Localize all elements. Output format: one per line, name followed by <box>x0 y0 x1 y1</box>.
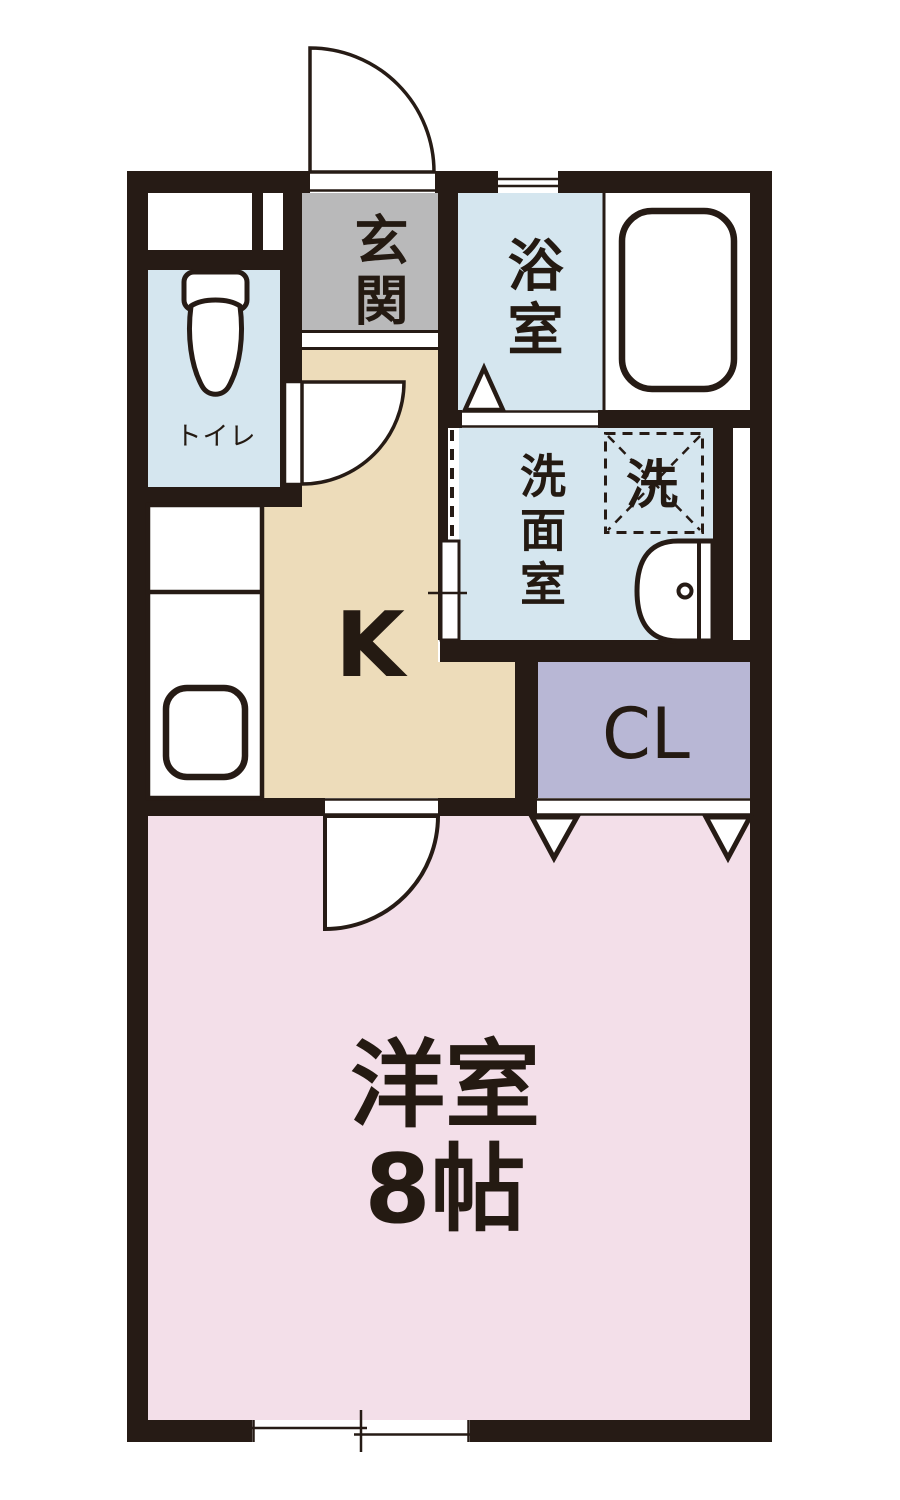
western-room-size: 8帖 <box>295 1138 595 1242</box>
bathroom-label: 浴室 <box>502 236 558 364</box>
bottom-sliding-window <box>252 1410 470 1452</box>
fixtures-layer <box>0 0 900 1500</box>
top-window <box>498 171 558 193</box>
kitchen-counter <box>148 505 262 798</box>
floor-plan: 玄関 浴室 洗面室 洗 トイレ K CL 洋室 8帖 <box>0 0 900 1500</box>
genkan-label: 玄関 <box>349 212 403 332</box>
kitchen-sink <box>166 688 245 777</box>
room-door-swing <box>325 798 438 929</box>
western-room-name: 洋室 <box>295 1034 595 1138</box>
toilet-label: トイレ <box>166 424 266 450</box>
toilet-icon <box>184 272 247 394</box>
entrance-door-swing <box>310 48 435 193</box>
washroom-label: 洗面室 <box>517 452 563 614</box>
kitchen-label: K <box>320 601 420 691</box>
western-room-label: 洋室 8帖 <box>295 1034 595 1242</box>
washroom-sliding-door <box>428 430 467 640</box>
bathroom-folding-door <box>462 368 598 428</box>
washer-space-label: 洗 <box>626 460 678 512</box>
closet-label: CL <box>596 699 696 769</box>
toilet-door-swing <box>285 382 404 484</box>
washbasin-icon <box>637 541 713 641</box>
bathtub-icon <box>622 211 734 389</box>
closet-folding-door <box>532 798 750 858</box>
